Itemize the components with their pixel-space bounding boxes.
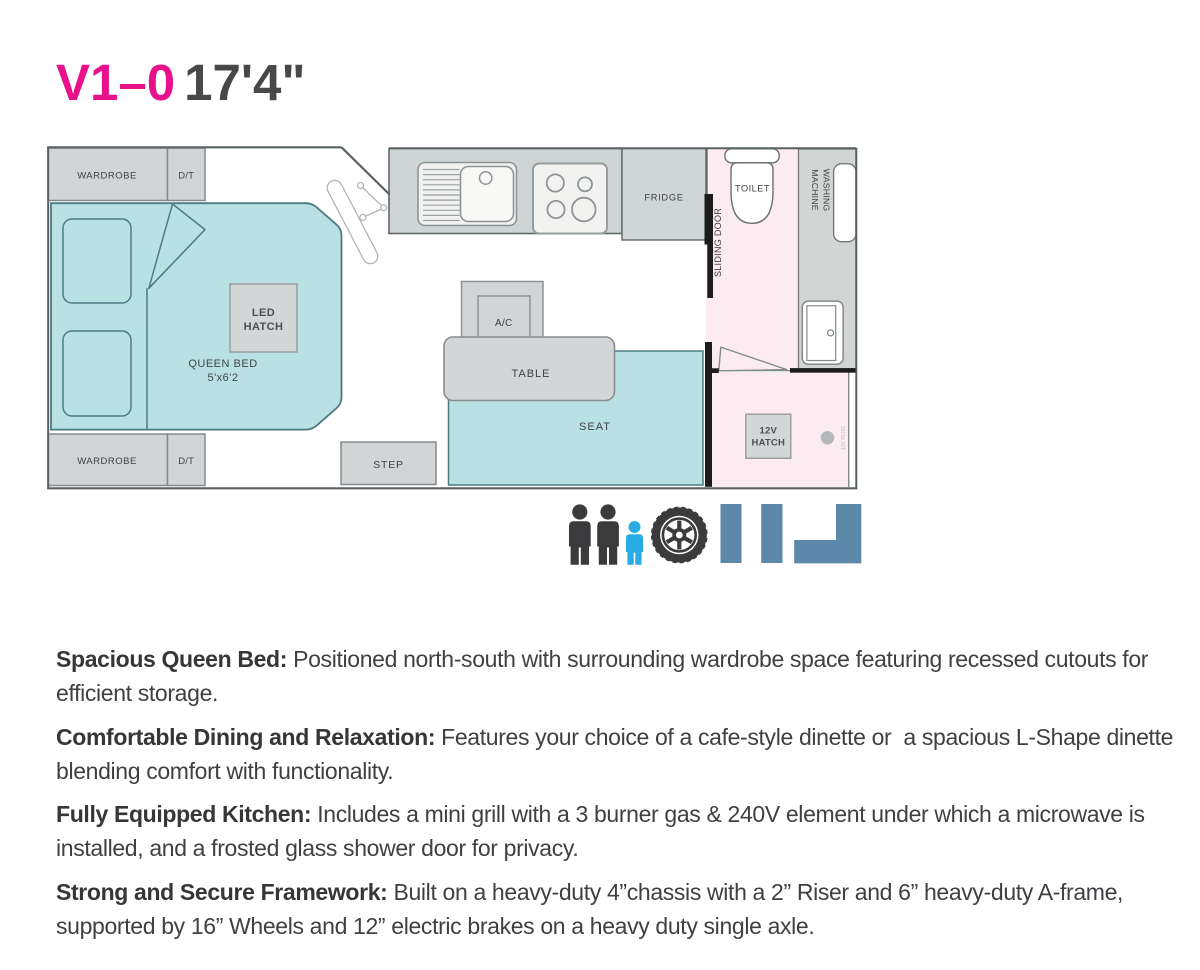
svg-text:D/T: D/T: [178, 171, 194, 182]
svg-text:A/C: A/C: [495, 318, 513, 329]
svg-text:5'x6'2: 5'x6'2: [207, 372, 238, 384]
svg-text:HATCH: HATCH: [244, 321, 284, 333]
svg-text:STEP: STEP: [373, 459, 404, 471]
svg-text:SLIDING DOOR: SLIDING DOOR: [713, 208, 723, 277]
svg-text:SEAT: SEAT: [579, 421, 611, 433]
svg-text:LED: LED: [252, 307, 275, 319]
svg-text:WASHING: WASHING: [822, 169, 832, 212]
svg-text:MACHINE: MACHINE: [810, 169, 820, 210]
svg-text:12V: 12V: [760, 426, 778, 437]
svg-text:TOILET: TOILET: [735, 184, 770, 194]
svg-text:QUEEN BED: QUEEN BED: [188, 358, 257, 370]
svg-text:12V PLUG: 12V PLUG: [841, 426, 847, 450]
svg-text:HATCH: HATCH: [752, 438, 786, 449]
svg-text:TABLE: TABLE: [511, 368, 550, 380]
svg-text:WARDROBE: WARDROBE: [77, 456, 137, 467]
svg-text:FRIDGE: FRIDGE: [644, 193, 683, 203]
svg-text:WARDROBE: WARDROBE: [77, 171, 137, 182]
svg-text:D/T: D/T: [178, 456, 194, 467]
